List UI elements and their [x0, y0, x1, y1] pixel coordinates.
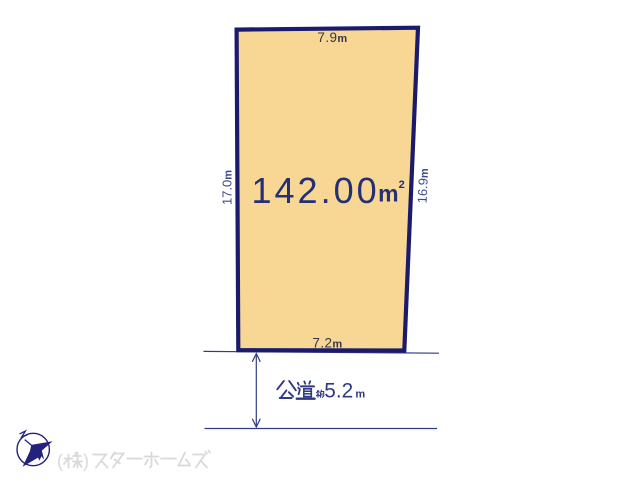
svg-text:7.2m: 7.2m [312, 336, 342, 351]
svg-text:17.0m: 17.0m [219, 170, 234, 205]
svg-text:7.9m: 7.9m [317, 30, 347, 45]
svg-text:): ) [83, 451, 89, 471]
svg-text:(: ( [57, 451, 63, 471]
